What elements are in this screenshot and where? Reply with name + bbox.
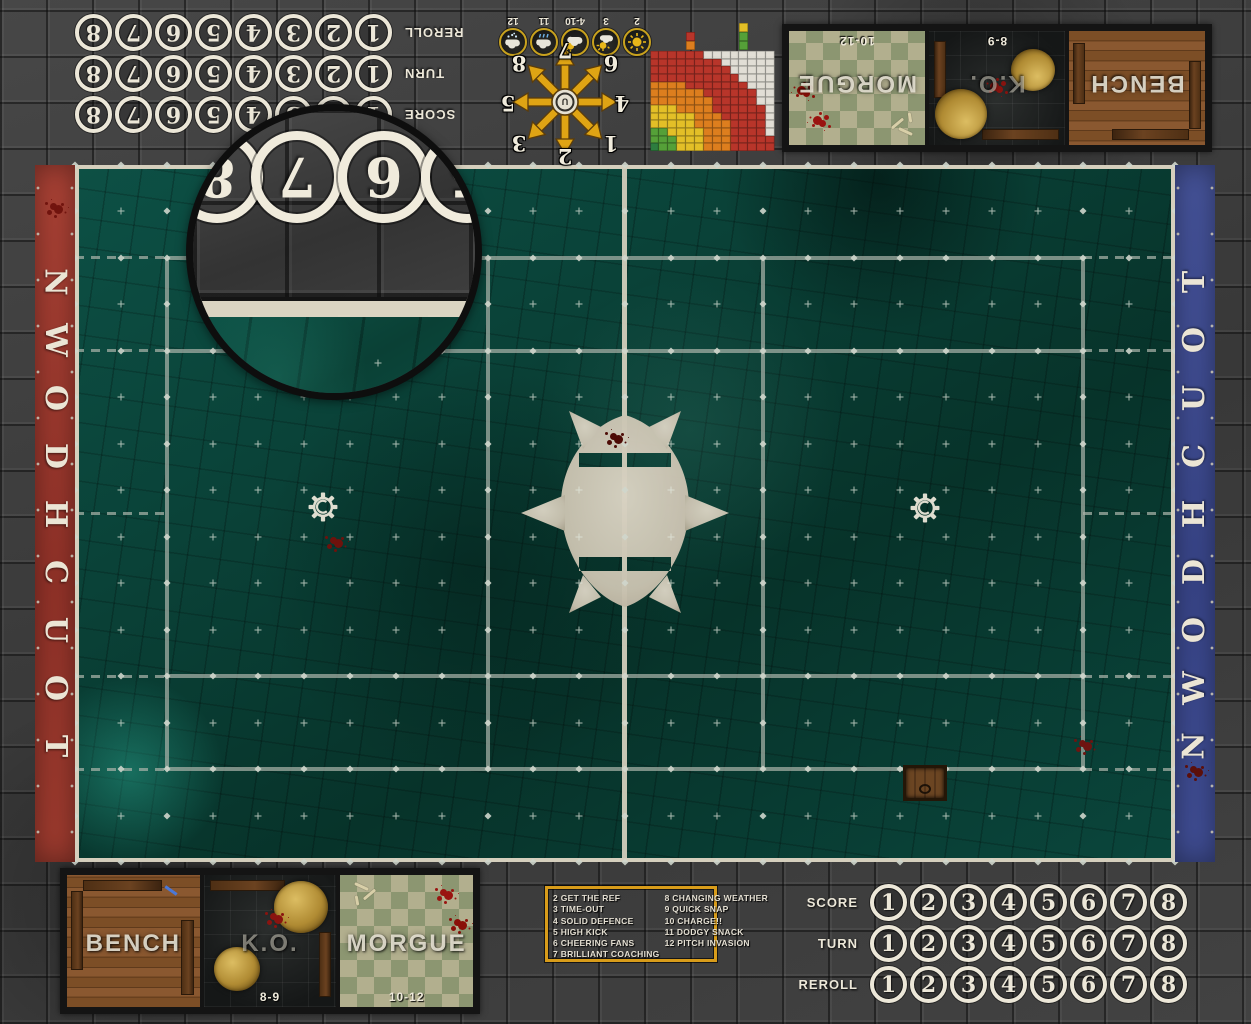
grid-cross-marker [255,440,262,447]
scatter-direction-number: 2 [554,141,576,169]
grid-rivet-marker [301,858,308,865]
range-ruler-cell [748,66,757,74]
grid-cross-marker [897,580,904,587]
range-ruler-cell [694,105,703,113]
touchdown-letter: O [38,384,72,410]
morgue-range-label: 10-12 [789,34,925,48]
range-ruler-cell [686,51,695,59]
tracker-row: SCORE12345678 [794,882,1187,923]
touchdown-letter: N [38,268,72,295]
blood-splat [819,120,826,127]
kickoff-table-entry: 3 TIME-OUT [553,904,660,915]
touchdown-letter: W [1178,671,1212,705]
range-ruler-cell [739,59,748,67]
tracker-number-circle: 2 [315,55,352,92]
grid-cross-marker [1034,580,1041,587]
range-ruler-cell [703,51,712,59]
ko-label: K.O. [929,69,1065,97]
range-ruler-cell [686,113,695,121]
range-ruler-cell [677,89,686,97]
range-ruler-cell [739,105,748,113]
magnified-pitch [193,317,475,393]
grid-cross-marker [392,812,399,819]
grid-cross-marker [347,626,354,633]
tracker-row-label: TURN [404,66,468,81]
grid-cross-marker [576,719,583,726]
touchdown-letter: H [1178,499,1212,527]
grid-cross-marker [530,533,537,540]
range-ruler-cell [712,97,721,105]
range-ruler-cell [757,136,766,144]
tracker-number-circle: 4 [990,966,1027,1003]
range-ruler-cell [659,59,668,67]
grid-cross-marker [851,301,858,308]
range-ruler-cell [766,113,775,121]
range-ruler-cell [703,97,712,105]
kickoff-table-left-column: 2 GET THE REF3 TIME-OUT4 SOLID DEFENCE5 … [553,893,660,955]
grid-rivet-marker [484,766,491,773]
grid-cross-marker [576,301,583,308]
range-ruler-cell [721,89,730,97]
grid-rivet-marker [713,858,720,865]
grid-cross-marker [209,487,216,494]
grid-rivet-marker [759,812,766,819]
touchdown-letter: O [1178,326,1212,352]
grid-cross-marker [805,487,812,494]
range-ruler-cell [748,97,757,105]
grid-cross-marker [438,394,445,401]
grid-cross-marker [667,719,674,726]
grid-cross-marker [392,719,399,726]
weather-range-label: 11 [539,15,550,26]
grid-rivet-marker [438,673,445,680]
grid-cross-marker [667,208,674,215]
grid-cross-marker [1126,719,1133,726]
range-ruler-cell [748,105,757,113]
range-ruler-cell [677,128,686,136]
grid-rivet-marker [530,858,537,865]
range-ruler-cell [686,74,695,82]
grid-cross-marker [438,440,445,447]
range-ruler-cell [659,136,668,144]
range-ruler-cell [677,136,686,144]
grid-rivet-marker [1126,161,1133,168]
grid-rivet-marker [805,858,812,865]
touchdown-letter: O [38,674,72,700]
range-ruler-cell [686,105,695,113]
range-ruler-cell [703,82,712,90]
range-ruler-legend-chip [739,32,748,41]
touchdown-letter: N [1178,732,1212,759]
grid-cross-marker [988,440,995,447]
range-ruler-cell [766,74,775,82]
gear-logo-icon [908,491,942,525]
grid-cross-marker [576,812,583,819]
grid-cross-marker [988,533,995,540]
range-ruler-cell [677,59,686,67]
range-ruler-cell [730,113,739,121]
grid-rivet-marker [713,161,720,168]
range-ruler-cell [650,82,659,90]
grid-cross-marker [1034,533,1041,540]
tracker-number-circle: 1 [870,925,907,962]
dugout-bench-zone: BENCH [1069,31,1205,145]
grid-rivet-marker [1080,812,1087,819]
grid-cross-marker [1034,626,1041,633]
skeleton-bones [355,895,360,905]
range-ruler-cell [694,74,703,82]
grid-cross-marker [667,626,674,633]
range-ruler-cell [668,51,677,59]
grid-rivet-marker [163,161,170,168]
grid-cross-marker [1034,812,1041,819]
range-ruler-cell [721,82,730,90]
range-ruler-cell [668,136,677,144]
blood-splat [1190,766,1197,773]
range-ruler-cell [739,120,748,128]
range-ruler-cell [757,143,766,151]
grid-cross-marker [576,440,583,447]
magnified-pitch-border [193,297,475,317]
tracker-number-circle: 8 [75,55,112,92]
grid-cross-marker [988,301,995,308]
tracker-number-circle: 8 [1150,966,1187,1003]
grid-cross-marker [805,440,812,447]
grid-cross-marker [209,719,216,726]
dugout-bottom: BENCH K.O. 8-9 MORGUE 10-12 [60,868,480,1014]
range-ruler-cell [766,59,775,67]
scatter-direction-number: 6 [600,48,622,76]
kickoff-table-entry: 9 QUICK SNAP [665,904,768,915]
tracker-number-circle: 3 [275,14,312,51]
grid-rivet-marker [621,858,628,865]
range-ruler-cell [703,128,712,136]
grid-cross-marker [713,394,720,401]
tracker-number-circle: 4 [990,925,1027,962]
range-ruler-cell [677,120,686,128]
grid-rivet-marker [713,673,720,680]
touchdown-letter: C [1178,444,1212,468]
grid-cross-marker [576,626,583,633]
tracker-number-circle: 3 [275,55,312,92]
skeleton-bones [908,112,913,122]
ko-range-label: 8-9 [929,34,1065,48]
kickoff-table-right-column: 8 CHANGING WEATHER9 QUICK SNAP10 CHARGE!… [665,893,768,955]
grid-cross-marker [942,719,949,726]
touchdown-banner-right: TOUCHDOWN [1175,165,1215,862]
grid-rivet-marker [805,161,812,168]
dugout-ko-zone: K.O. 8-9 [929,31,1065,145]
grid-rivet-marker [163,208,170,215]
grid-cross-marker [1126,208,1133,215]
grid-rivet-marker [484,812,491,819]
grid-cross-marker [1034,301,1041,308]
svg-text:U: U [562,97,569,107]
scatter-direction-number: 3 [508,128,530,156]
range-ruler-cell [739,136,748,144]
grid-cross-marker [209,812,216,819]
range-ruler-legend [739,23,748,50]
range-ruler-cell [686,66,695,74]
grid-cross-marker [851,580,858,587]
range-ruler-cell [757,51,766,59]
tracker-row-label: SCORE [794,895,858,910]
tracker-bottom-right: SCORE12345678TURN12345678REROLL12345678 [794,882,1187,1005]
grid-cross-marker [209,580,216,587]
range-ruler-cell [739,66,748,74]
grid-cross-marker [1126,440,1133,447]
grid-cross-marker [301,812,308,819]
tracker-row-label: REROLL [794,977,858,992]
range-ruler-cell [703,74,712,82]
grid-cross-marker [897,626,904,633]
grid-cross-marker [392,487,399,494]
grid-cross-marker [942,301,949,308]
range-ruler-cell [730,136,739,144]
range-ruler-cell [694,66,703,74]
ko-label: K.O. [204,930,337,958]
range-ruler-cell [739,128,748,136]
range-ruler-cell [659,89,668,97]
grid-cross-marker [713,301,720,308]
range-ruler-cell [757,82,766,90]
grid-cross-marker [209,394,216,401]
grid-rivet-marker [759,208,766,215]
range-ruler-cell [677,143,686,151]
grid-rivet-marker [209,673,216,680]
range-ruler-cell [757,74,766,82]
blood-splat [50,203,57,210]
magnified-number: 8 [198,145,236,209]
tracker-number-circle: 6 [1070,966,1107,1003]
grid-cross-marker [1126,812,1133,819]
range-ruler-cell [739,113,748,121]
range-ruler-cell [757,120,766,128]
range-ruler-cell [659,105,668,113]
grid-cross-marker [988,580,995,587]
range-ruler-cell [694,136,703,144]
morgue-range-label: 10-12 [340,990,473,1004]
range-ruler-cell [739,97,748,105]
grid-cross-marker [301,440,308,447]
range-ruler-cell [694,113,703,121]
grid-cross-marker [576,394,583,401]
range-ruler-cell [703,66,712,74]
grid-cross-marker [576,533,583,540]
grid-rivet-marker [117,858,124,865]
grid-cross-marker [255,533,262,540]
grid-cross-marker [438,533,445,540]
range-ruler-cell [650,120,659,128]
grid-cross-marker [897,208,904,215]
grid-cross-marker [347,487,354,494]
grid-cross-marker [713,719,720,726]
blood-splat [270,913,277,920]
tracker-number-circle: 2 [910,925,947,962]
grid-cross-marker [347,533,354,540]
range-ruler-cell [766,82,775,90]
grid-rivet-marker [530,161,537,168]
magnifier-inset: 8765 [186,104,482,400]
range-ruler-cell [766,120,775,128]
grid-rivet-marker [621,812,628,819]
tracker-number-circle: 6 [155,96,192,133]
grid-rivet-marker [988,161,995,168]
grid-cross-marker [255,487,262,494]
range-ruler-cell [703,59,712,67]
grid-cross-marker [851,626,858,633]
grid-rivet-marker [117,161,124,168]
range-ruler-cell [730,97,739,105]
tracker-number-circle: 2 [910,884,947,921]
blood-splat [610,433,617,440]
range-ruler-cell [712,120,721,128]
grid-cross-marker [1126,394,1133,401]
range-ruler-chart [650,51,774,151]
grid-cross-marker [805,208,812,215]
range-ruler-cell [721,113,730,121]
range-ruler-cell [686,128,695,136]
touchdown-letter: U [1178,384,1212,410]
range-ruler-cell [650,74,659,82]
tracker-row: TURN12345678 [794,923,1187,964]
dugout-morgue-zone: MORGUE 10-12 [789,31,925,145]
grid-cross-marker [1126,533,1133,540]
grid-cross-marker [851,440,858,447]
kickoff-table-entry: 5 HIGH KICK [553,927,660,938]
range-ruler-cell [766,136,775,144]
grid-cross-marker [530,719,537,726]
scatter-direction-number: 1 [600,128,622,156]
grid-cross-marker [897,301,904,308]
grid-rivet-marker [392,858,399,865]
grid-rivet-marker [576,161,583,168]
range-ruler-cell [650,143,659,151]
range-ruler-cell [668,113,677,121]
range-ruler-cell [659,74,668,82]
spiked-ball-emblem [515,398,735,628]
range-ruler-cell [712,128,721,136]
range-ruler-cell [766,89,775,97]
grid-cross-marker [530,812,537,819]
grid-rivet-marker [209,766,216,773]
magnified-stone: 8765 [193,111,475,297]
tracker-number-circle: 7 [115,55,152,92]
grid-rivet-marker [667,858,674,865]
tracker-number-circle: 3 [950,966,987,1003]
tracker-number-circle: 5 [195,14,232,51]
tracker-number-circle: 2 [315,14,352,51]
grid-rivet-marker [1034,673,1041,680]
dugout-bench-zone: BENCH [67,875,200,1007]
dugout-ko-zone: K.O. 8-9 [204,875,337,1007]
weather-range-label: 4-10 [565,15,585,26]
grid-rivet-marker [942,161,949,168]
range-ruler-cell [730,66,739,74]
range-ruler-cell [748,113,757,121]
grid-rivet-marker [484,208,491,215]
grid-cross-marker [713,812,720,819]
touchdown-letter: O [1178,616,1212,642]
grid-cross-marker [301,719,308,726]
range-ruler-cell [694,97,703,105]
range-ruler-cell [659,82,668,90]
range-ruler-cell [694,51,703,59]
range-ruler-cell [730,74,739,82]
grid-cross-marker [713,626,720,633]
range-ruler-cell [650,59,659,67]
grid-cross-marker [1034,487,1041,494]
grid-cross-marker [897,533,904,540]
grid-cross-marker [988,812,995,819]
range-ruler-cell [757,66,766,74]
grid-cross-marker [530,394,537,401]
grid-cross-marker [713,208,720,215]
range-ruler-cell [748,128,757,136]
grid-cross-marker [438,487,445,494]
range-ruler-cell [650,51,659,59]
range-ruler-cell [694,82,703,90]
grid-cross-marker [117,487,124,494]
range-ruler-cell [712,74,721,82]
grid-cross-marker [1126,301,1133,308]
tracker-number-circle: 7 [115,96,152,133]
range-ruler-cell [668,120,677,128]
grid-cross-marker [117,719,124,726]
grid-cross-marker [438,812,445,819]
blood-splat [1079,740,1086,747]
tracker-number-circle: 8 [75,96,112,133]
grid-rivet-marker [1034,161,1041,168]
range-ruler-cell [721,128,730,136]
range-ruler-cell [677,66,686,74]
tracker-number-circle: 7 [1110,884,1147,921]
range-ruler-cell [703,113,712,121]
grid-cross-marker [576,580,583,587]
paintbrush [164,885,177,895]
grid-rivet-marker [1034,858,1041,865]
grid-cross-marker [117,533,124,540]
grid-cross-marker [530,208,537,215]
range-ruler-cell [694,128,703,136]
grid-cross-marker [667,394,674,401]
range-ruler-cell [668,105,677,113]
grid-cross-marker [805,580,812,587]
grid-cross-marker [117,626,124,633]
range-ruler-cell [677,97,686,105]
grid-cross-marker [1126,487,1133,494]
grid-rivet-marker [484,858,491,865]
range-ruler-cell [721,97,730,105]
range-ruler-cell [668,97,677,105]
grid-rivet-marker [163,858,170,865]
magnified-number-circle: 7 [251,131,343,223]
range-ruler-cell [668,66,677,74]
bench-label: BENCH [1069,69,1205,97]
grid-rivet-marker [1080,719,1087,726]
grid-cross-marker [805,719,812,726]
tracker-number-circle: 7 [1110,925,1147,962]
grid-cross-marker [851,812,858,819]
touchdown-letter: H [38,499,72,527]
tracker-number-circle: 6 [155,14,192,51]
range-ruler-cell [721,143,730,151]
ko-range-label: 8-9 [204,990,337,1004]
range-ruler-cell [757,128,766,136]
hay-pile [274,881,328,933]
bench-label: BENCH [67,930,200,958]
grid-cross-marker [851,487,858,494]
